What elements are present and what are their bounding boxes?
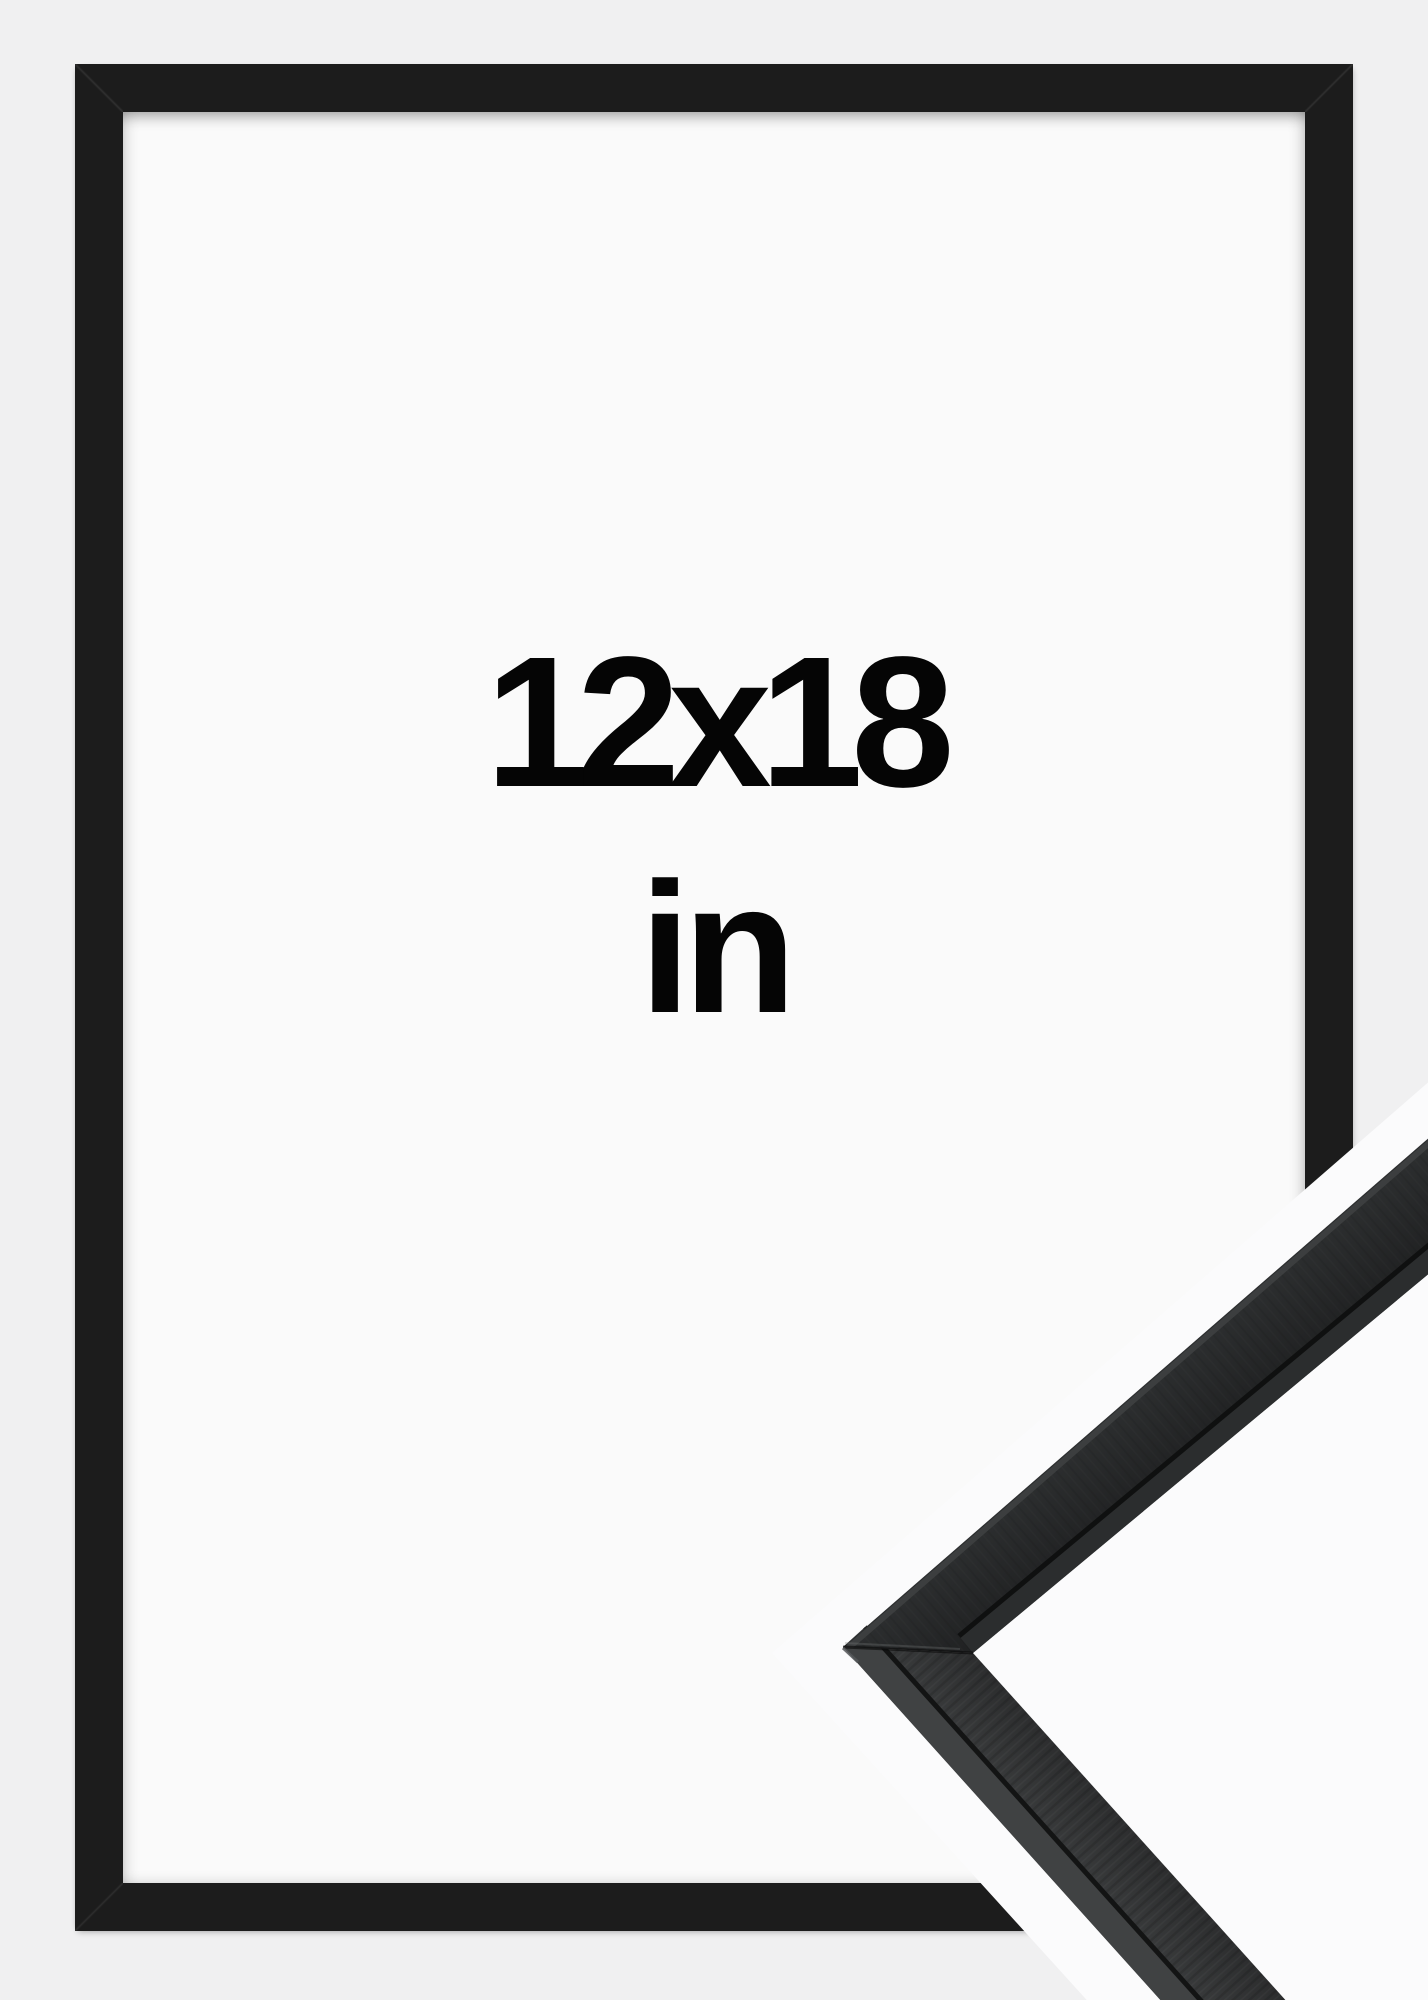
frame-product-photo: 12x18 in — [0, 0, 1428, 2000]
size-unit-label: in — [75, 856, 1353, 1042]
frame-miter-bottom-left — [75, 1883, 123, 1931]
frame-miter-top-left — [75, 64, 123, 112]
size-dimensions-label: 12x18 — [75, 630, 1353, 816]
frame-miter-top-right — [1305, 64, 1353, 112]
